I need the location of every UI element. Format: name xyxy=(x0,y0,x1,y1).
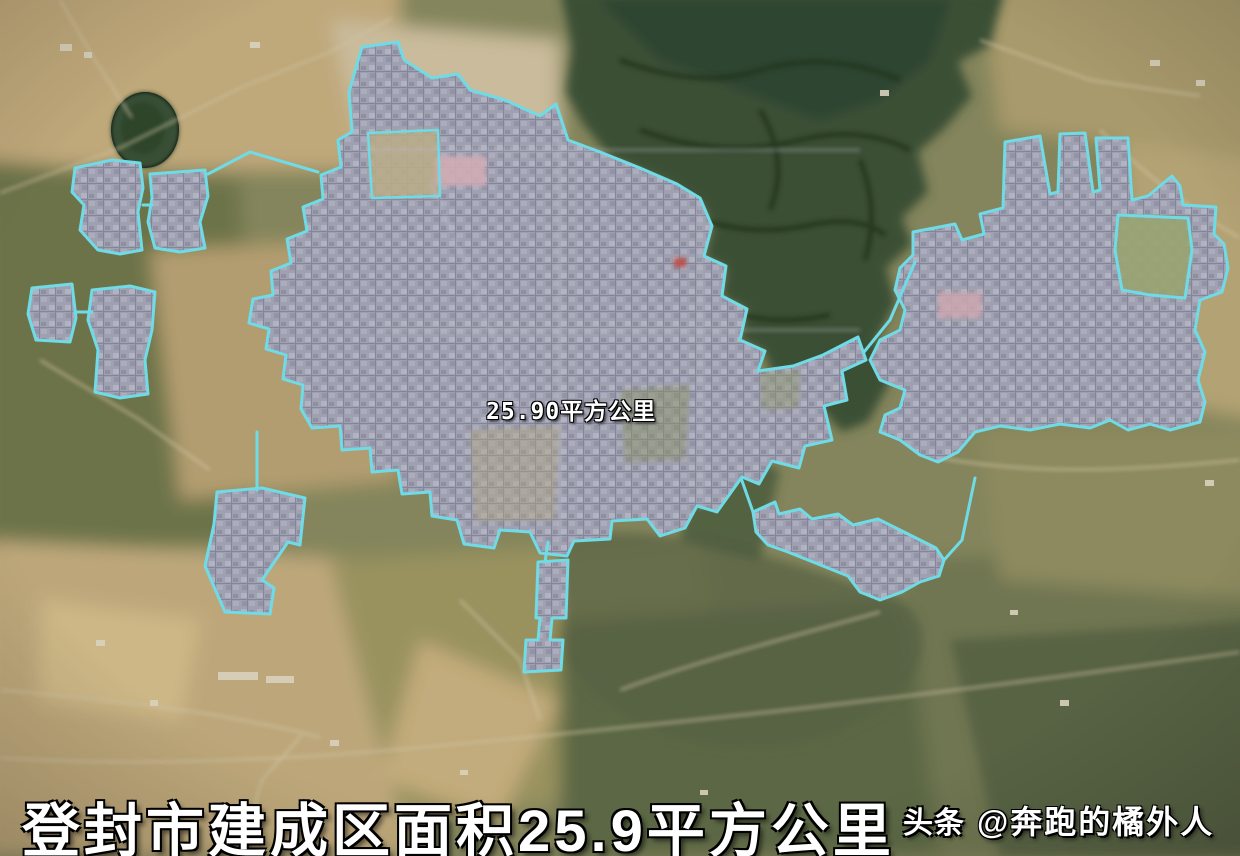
vignette xyxy=(0,0,1240,856)
watermark-brand-toutiao: 头条 xyxy=(903,798,965,842)
watermark-author-handle: @奔跑的橘外人 xyxy=(977,797,1214,843)
screenshot-root: 25.90平方公里 登封市建成区面积25.9平方公里 头条 @奔跑的橘外人 xyxy=(0,0,1240,856)
area-label: 25.90平方公里 xyxy=(486,392,656,426)
caption-title: 登封市建成区面积25.9平方公里 xyxy=(22,784,895,856)
satellite-map xyxy=(0,0,1240,856)
watermark: 头条 @奔跑的橘外人 xyxy=(903,797,1214,843)
